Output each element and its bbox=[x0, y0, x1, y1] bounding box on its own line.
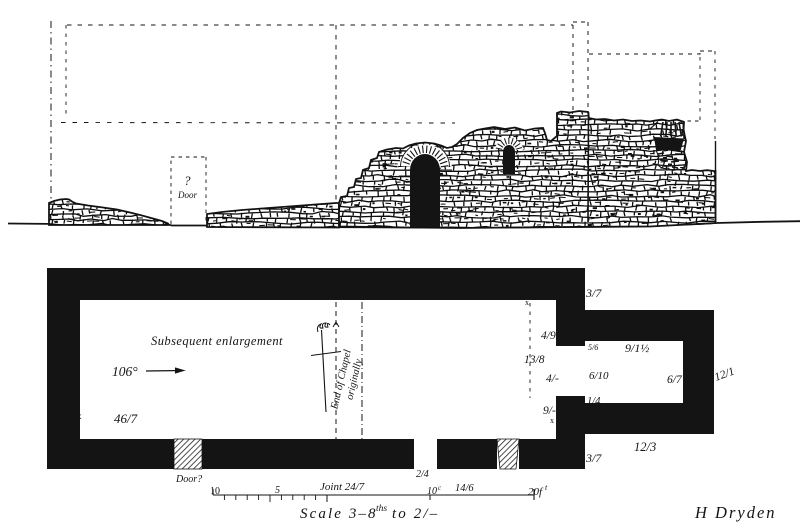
svg-text:10: 10 bbox=[210, 486, 220, 497]
svg-text:4/-: 4/- bbox=[546, 373, 559, 385]
svg-text:2/4: 2/4 bbox=[416, 469, 429, 480]
svg-text:to 2/–: to 2/– bbox=[392, 506, 439, 522]
svg-text:5/6: 5/6 bbox=[588, 343, 598, 352]
svg-text:20f: 20f bbox=[528, 486, 544, 498]
svg-text:5: 5 bbox=[275, 485, 280, 496]
svg-text:Scale 3–8: Scale 3–8 bbox=[300, 506, 378, 522]
svg-text:9/-: 9/- bbox=[543, 405, 556, 417]
svg-text:H Dryden: H Dryden bbox=[694, 503, 777, 522]
svg-text:46/7: 46/7 bbox=[114, 411, 138, 426]
svg-text:106°: 106° bbox=[112, 364, 138, 379]
svg-text:Joint 24/7: Joint 24/7 bbox=[320, 481, 365, 493]
svg-text:Subsequent enlargement: Subsequent enlargement bbox=[151, 334, 283, 348]
svg-text:Door: Door bbox=[177, 190, 197, 200]
svg-text:6/10: 6/10 bbox=[589, 370, 609, 382]
svg-text:x: x bbox=[77, 411, 82, 421]
svg-text:4/9: 4/9 bbox=[541, 330, 556, 342]
svg-text:ths: ths bbox=[376, 504, 387, 514]
svg-text:10: 10 bbox=[427, 486, 437, 497]
svg-text:6/7: 6/7 bbox=[667, 374, 683, 386]
svg-text:3/7: 3/7 bbox=[585, 451, 602, 465]
svg-text:?: ? bbox=[184, 173, 191, 188]
svg-text:3/7: 3/7 bbox=[585, 286, 602, 300]
svg-text:13/8: 13/8 bbox=[524, 354, 545, 366]
svg-text:x: x bbox=[525, 298, 529, 307]
svg-text:x: x bbox=[550, 416, 554, 425]
svg-text:9/1½: 9/1½ bbox=[625, 341, 649, 355]
svg-text:Door?: Door? bbox=[175, 474, 202, 485]
svg-text:14/6: 14/6 bbox=[455, 483, 474, 494]
svg-text:1/4: 1/4 bbox=[587, 396, 601, 407]
svg-text:12/3: 12/3 bbox=[634, 440, 656, 454]
